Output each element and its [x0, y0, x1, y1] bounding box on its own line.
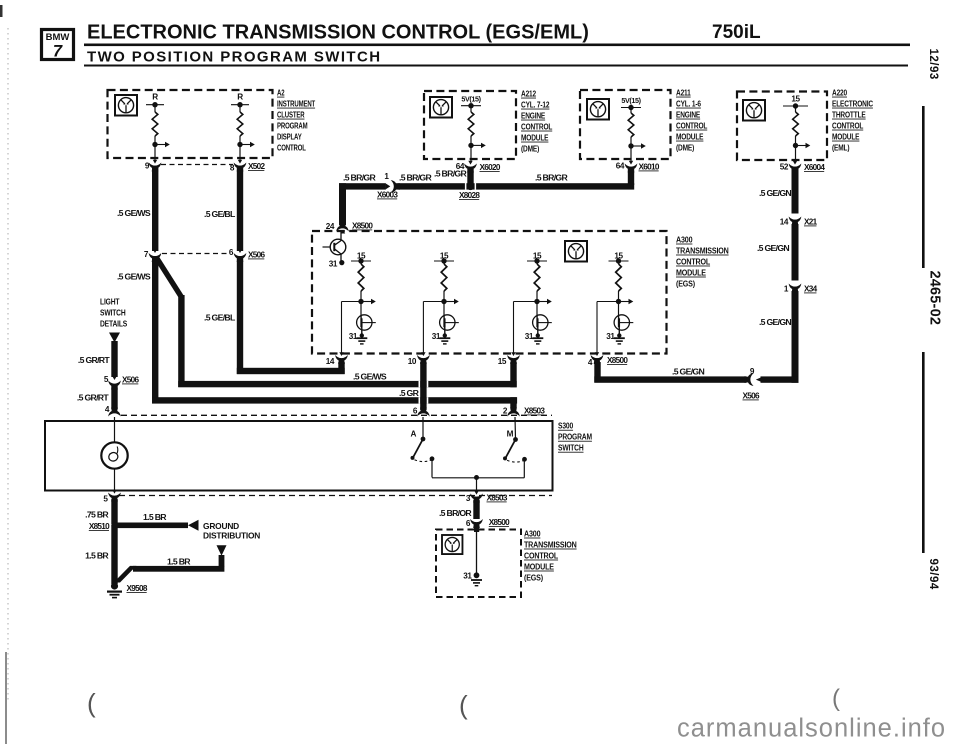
svg-text:X8510: X8510: [89, 522, 110, 531]
svg-text:X8500: X8500: [607, 356, 628, 365]
svg-text:.5 GE/BL: .5 GE/BL: [204, 313, 236, 323]
svg-text:15: 15: [791, 95, 800, 104]
svg-text:X8503: X8503: [524, 407, 545, 416]
svg-text:DETAILS: DETAILS: [100, 319, 127, 329]
svg-text:carmanualsonline.info: carmanualsonline.info: [677, 715, 946, 743]
svg-text:(EGS): (EGS): [676, 279, 695, 289]
svg-text:TRANSMISSION: TRANSMISSION: [676, 246, 729, 256]
svg-text:.5 GE/GN: .5 GE/GN: [672, 367, 704, 377]
svg-text:.5 GE/WS: .5 GE/WS: [117, 272, 151, 282]
svg-text:ENGINE: ENGINE: [521, 111, 545, 121]
svg-text:DISTRIBUTION: DISTRIBUTION: [203, 531, 260, 541]
svg-text:31: 31: [525, 332, 534, 341]
svg-text:(DME): (DME): [676, 143, 695, 153]
svg-text:X506: X506: [743, 392, 760, 401]
svg-text:CONTROL: CONTROL: [524, 551, 558, 561]
svg-text:A300: A300: [524, 529, 541, 539]
svg-text:5V(15): 5V(15): [621, 96, 641, 105]
svg-text:52: 52: [780, 163, 789, 172]
svg-text:TWO POSITION PROGRAM SWITCH: TWO POSITION PROGRAM SWITCH: [87, 49, 381, 66]
svg-text:MODULE: MODULE: [832, 132, 860, 142]
svg-text:CLUSTER: CLUSTER: [277, 109, 305, 119]
svg-text:X8028: X8028: [459, 191, 480, 200]
svg-text:THROTTLE: THROTTLE: [832, 110, 866, 120]
svg-text:(DME): (DME): [521, 144, 540, 154]
svg-text:X9508: X9508: [127, 584, 148, 593]
svg-text:A2: A2: [277, 87, 285, 97]
svg-text:CONTROL: CONTROL: [676, 257, 710, 267]
svg-text:.5 GE/BL: .5 GE/BL: [204, 209, 236, 219]
svg-text:.5 GE/WS: .5 GE/WS: [117, 208, 151, 218]
svg-text:GROUND: GROUND: [203, 521, 239, 531]
svg-text:R: R: [152, 93, 158, 102]
svg-text:12/93: 12/93: [927, 49, 939, 80]
svg-text:CONTROL: CONTROL: [676, 121, 708, 131]
svg-text:CONTROL: CONTROL: [277, 142, 306, 152]
svg-text:ELECTRONIC: ELECTRONIC: [832, 99, 874, 109]
svg-text:15: 15: [498, 357, 507, 366]
svg-text:(EGS): (EGS): [524, 573, 543, 583]
svg-text:X34: X34: [804, 285, 818, 294]
svg-text:.5 GE/GN: .5 GE/GN: [759, 317, 791, 327]
svg-text:S300: S300: [558, 421, 573, 431]
svg-text:DISPLAY: DISPLAY: [277, 131, 302, 141]
svg-text:7: 7: [53, 43, 63, 61]
svg-text:X8500: X8500: [352, 222, 373, 231]
svg-text:INSTRUMENT: INSTRUMENT: [277, 98, 316, 108]
svg-text:A300: A300: [676, 235, 693, 245]
svg-text:X6010: X6010: [639, 163, 660, 172]
svg-text:64: 64: [616, 162, 625, 171]
svg-text:X6003: X6003: [377, 191, 398, 200]
svg-text:(: (: [459, 690, 468, 720]
svg-text:ELECTRONIC TRANSMISSION CONTRO: ELECTRONIC TRANSMISSION CONTROL (EGS/EML…: [87, 22, 589, 44]
svg-text:.5 BR/GR: .5 BR/GR: [399, 173, 432, 183]
svg-text:SWITCH: SWITCH: [558, 443, 584, 453]
svg-text:LIGHT: LIGHT: [100, 297, 120, 307]
svg-text:(: (: [832, 685, 840, 712]
svg-text:TRANSMISSION: TRANSMISSION: [524, 540, 577, 550]
svg-text:1.5 BR: 1.5 BR: [167, 557, 191, 567]
svg-text:31: 31: [329, 260, 338, 269]
svg-text:31: 31: [606, 332, 615, 341]
svg-text:R: R: [237, 93, 243, 102]
svg-text:31: 31: [349, 332, 358, 341]
svg-text:10: 10: [408, 357, 417, 366]
svg-text:1.5 BR: 1.5 BR: [85, 551, 109, 561]
svg-text:.5 GE/WS: .5 GE/WS: [353, 372, 387, 382]
svg-text:31: 31: [432, 332, 441, 341]
svg-text:PROGRAM: PROGRAM: [277, 120, 308, 130]
svg-text:.5 GR: .5 GR: [399, 388, 420, 398]
svg-text:.5 GR/RT: .5 GR/RT: [78, 355, 110, 365]
svg-text:.5 BR/GR: .5 BR/GR: [535, 173, 568, 183]
svg-text:BMW: BMW: [46, 32, 70, 43]
svg-text:PROGRAM: PROGRAM: [558, 432, 592, 442]
svg-text:14: 14: [326, 357, 335, 366]
svg-text:X8503: X8503: [487, 494, 508, 503]
svg-text:.5 BR/GR: .5 BR/GR: [343, 173, 376, 183]
svg-text:2465-02: 2465-02: [927, 271, 943, 326]
svg-text:X6020: X6020: [480, 163, 501, 172]
svg-text:MODULE: MODULE: [521, 133, 549, 143]
svg-text:.5 BR/GR: .5 BR/GR: [434, 169, 467, 179]
svg-text:CONTROL: CONTROL: [521, 122, 553, 132]
svg-text:24: 24: [326, 222, 335, 231]
svg-text:CONTROL: CONTROL: [832, 121, 864, 131]
svg-text:ENGINE: ENGINE: [676, 110, 700, 120]
svg-text:A: A: [411, 430, 417, 439]
svg-text:14: 14: [780, 218, 789, 227]
svg-text:CYL. 1-6: CYL. 1-6: [676, 99, 701, 109]
svg-text:X506: X506: [122, 376, 139, 385]
svg-text:(: (: [87, 688, 96, 718]
svg-text:1.5 BR: 1.5 BR: [143, 512, 167, 522]
svg-text:A212: A212: [521, 89, 536, 99]
svg-text:750iL: 750iL: [712, 22, 761, 43]
svg-text:5V(15): 5V(15): [461, 95, 481, 104]
svg-text:31: 31: [463, 572, 472, 581]
svg-text:X506: X506: [248, 251, 265, 260]
svg-text:A220: A220: [832, 88, 847, 98]
svg-text:X21: X21: [804, 218, 818, 227]
svg-text:SWITCH: SWITCH: [100, 308, 126, 318]
svg-text:MODULE: MODULE: [676, 268, 706, 278]
svg-text:CYL. 7-12: CYL. 7-12: [521, 100, 549, 110]
svg-text:.5 GR/RT: .5 GR/RT: [77, 393, 109, 403]
svg-text:A211: A211: [676, 88, 691, 98]
svg-text:.5 BR/OR: .5 BR/OR: [439, 508, 472, 518]
svg-text:M: M: [507, 430, 514, 439]
svg-text:X8500: X8500: [489, 518, 510, 527]
svg-text:93/94: 93/94: [927, 559, 939, 590]
svg-text:(EML): (EML): [832, 143, 850, 153]
svg-text:X502: X502: [248, 162, 265, 171]
svg-text:.5 GE/GN: .5 GE/GN: [757, 243, 789, 253]
svg-text:MODULE: MODULE: [676, 132, 704, 142]
svg-text:X6004: X6004: [804, 163, 825, 172]
svg-text:.75 BR: .75 BR: [85, 510, 109, 520]
svg-text:MODULE: MODULE: [524, 562, 554, 572]
svg-text:.5 GE/GN: .5 GE/GN: [759, 188, 791, 198]
